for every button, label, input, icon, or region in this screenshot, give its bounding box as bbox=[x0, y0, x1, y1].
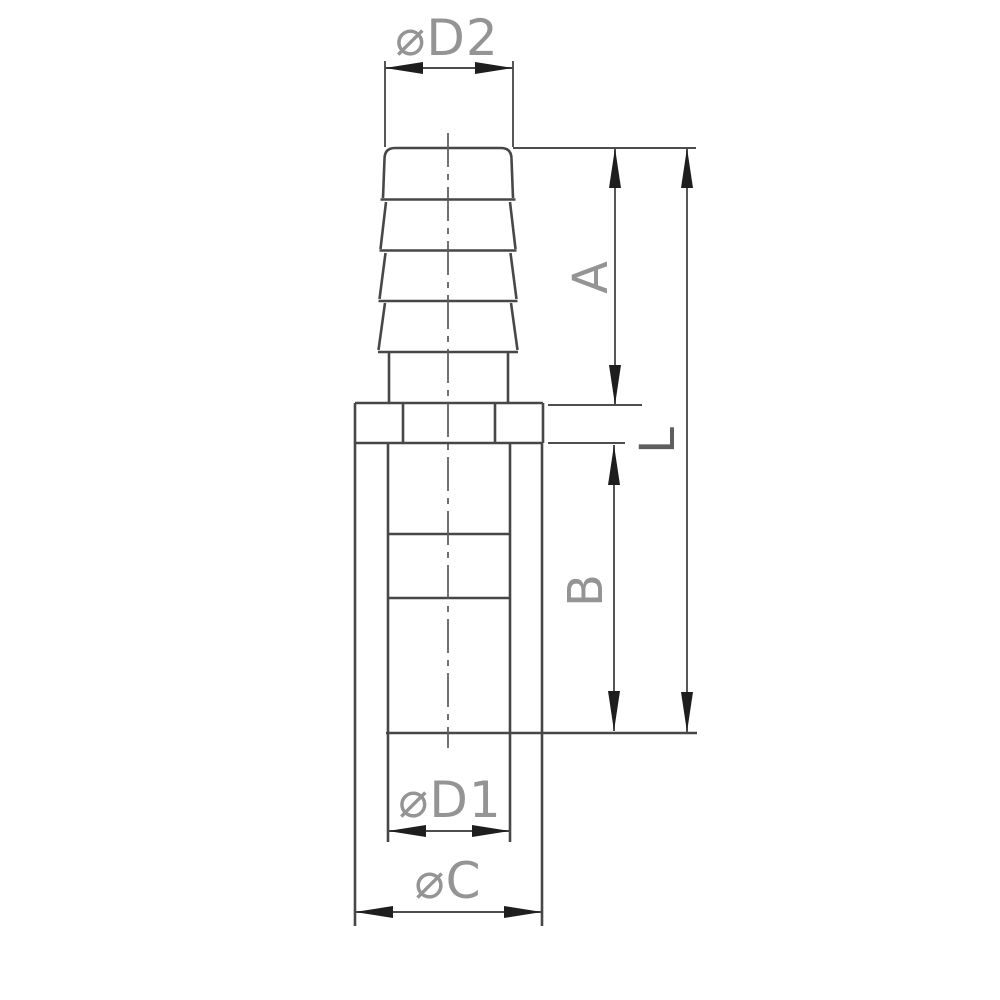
l-arrow-up bbox=[681, 148, 693, 188]
c-arrow-left bbox=[355, 906, 393, 918]
hose-barb-fitting-drawing: ⌀D2 A L B bbox=[0, 0, 1000, 1000]
dim-label-a: A bbox=[563, 260, 619, 294]
l-arrow-down bbox=[681, 692, 693, 732]
dim-label-d2: ⌀D2 bbox=[395, 9, 498, 67]
barb-segment3-right bbox=[511, 253, 517, 299]
barb-segment3-left bbox=[380, 253, 386, 299]
dimension-c: ⌀C bbox=[355, 852, 542, 918]
barb-segment2-right bbox=[510, 202, 516, 249]
a-arrow-down bbox=[609, 365, 621, 405]
b-arrow-up bbox=[608, 445, 620, 485]
dim-label-b: B bbox=[558, 573, 614, 607]
b-arrow-down bbox=[608, 691, 620, 731]
dimension-l: L bbox=[630, 148, 693, 732]
barb-segment2-left bbox=[381, 202, 387, 249]
dim-label-d1: ⌀D1 bbox=[398, 771, 501, 829]
dim-label-l: L bbox=[630, 426, 686, 454]
dimension-a: A bbox=[513, 148, 696, 405]
dim-label-c: ⌀C bbox=[414, 852, 481, 910]
a-arrow-up bbox=[609, 148, 621, 188]
dimension-d2: ⌀D2 bbox=[385, 9, 513, 147]
barb-segment4-left bbox=[379, 303, 386, 350]
dimension-d1: ⌀D1 bbox=[388, 771, 510, 837]
barb-segment4-right bbox=[511, 303, 518, 350]
c-arrow-right bbox=[504, 906, 542, 918]
technical-drawing-page: ⌀D2 A L B bbox=[0, 0, 1000, 1000]
dimension-b: B bbox=[548, 443, 625, 731]
